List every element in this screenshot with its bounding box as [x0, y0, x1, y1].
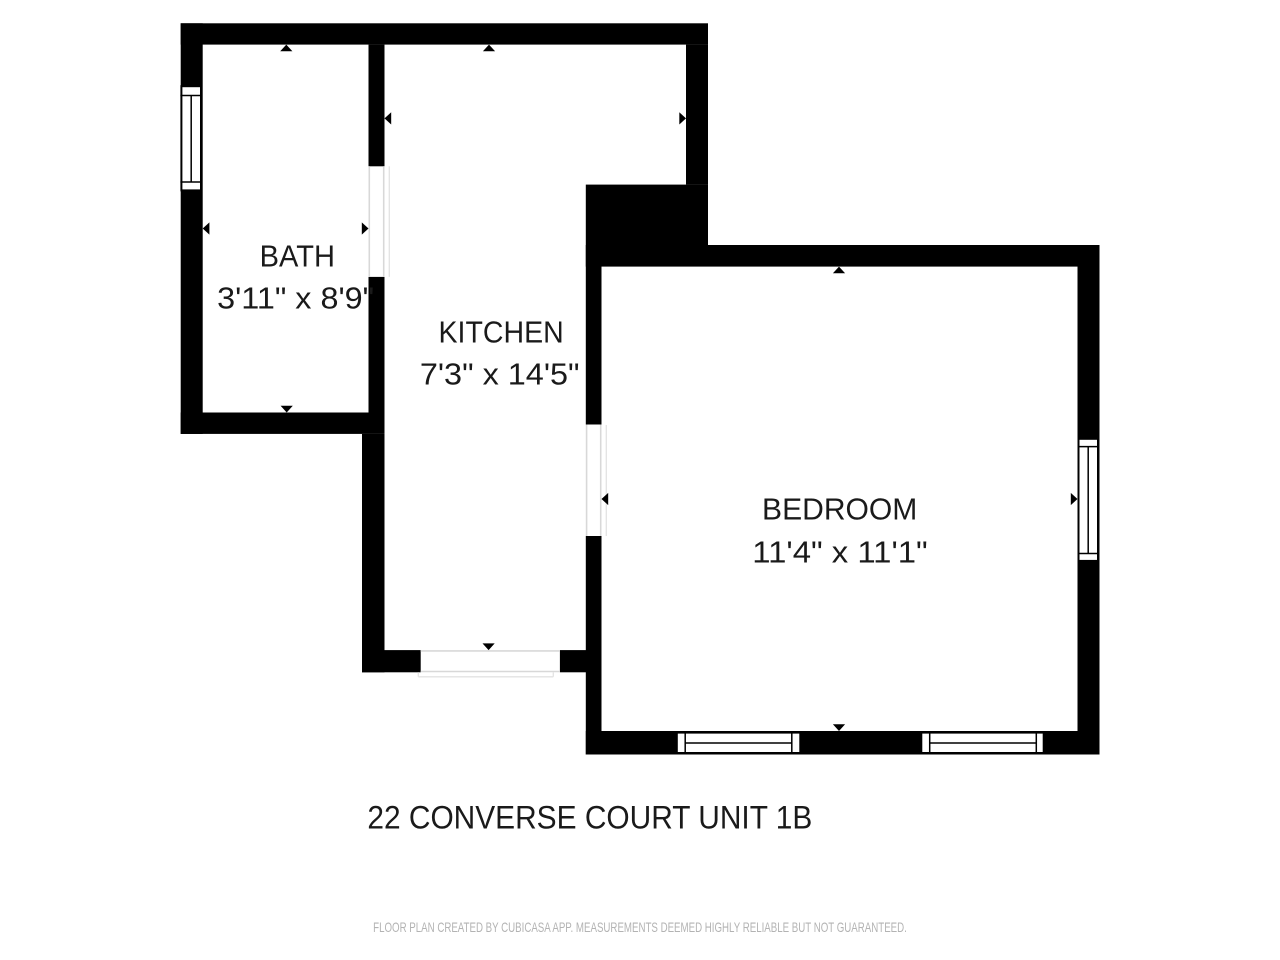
svg-text:BATH: BATH — [260, 239, 335, 274]
svg-text:KITCHEN: KITCHEN — [439, 314, 564, 349]
svg-text:11'4" x 11'1": 11'4" x 11'1" — [752, 535, 927, 570]
svg-text:22 CONVERSE COURT UNIT 1B: 22 CONVERSE COURT UNIT 1B — [367, 800, 812, 836]
svg-text:7'3" x 14'5": 7'3" x 14'5" — [420, 356, 580, 391]
svg-text:3'11" x 8'9": 3'11" x 8'9" — [217, 281, 374, 316]
svg-text:FLOOR PLAN CREATED BY CUBICASA: FLOOR PLAN CREATED BY CUBICASA APP. MEAS… — [373, 920, 907, 935]
svg-text:BEDROOM: BEDROOM — [762, 492, 917, 527]
